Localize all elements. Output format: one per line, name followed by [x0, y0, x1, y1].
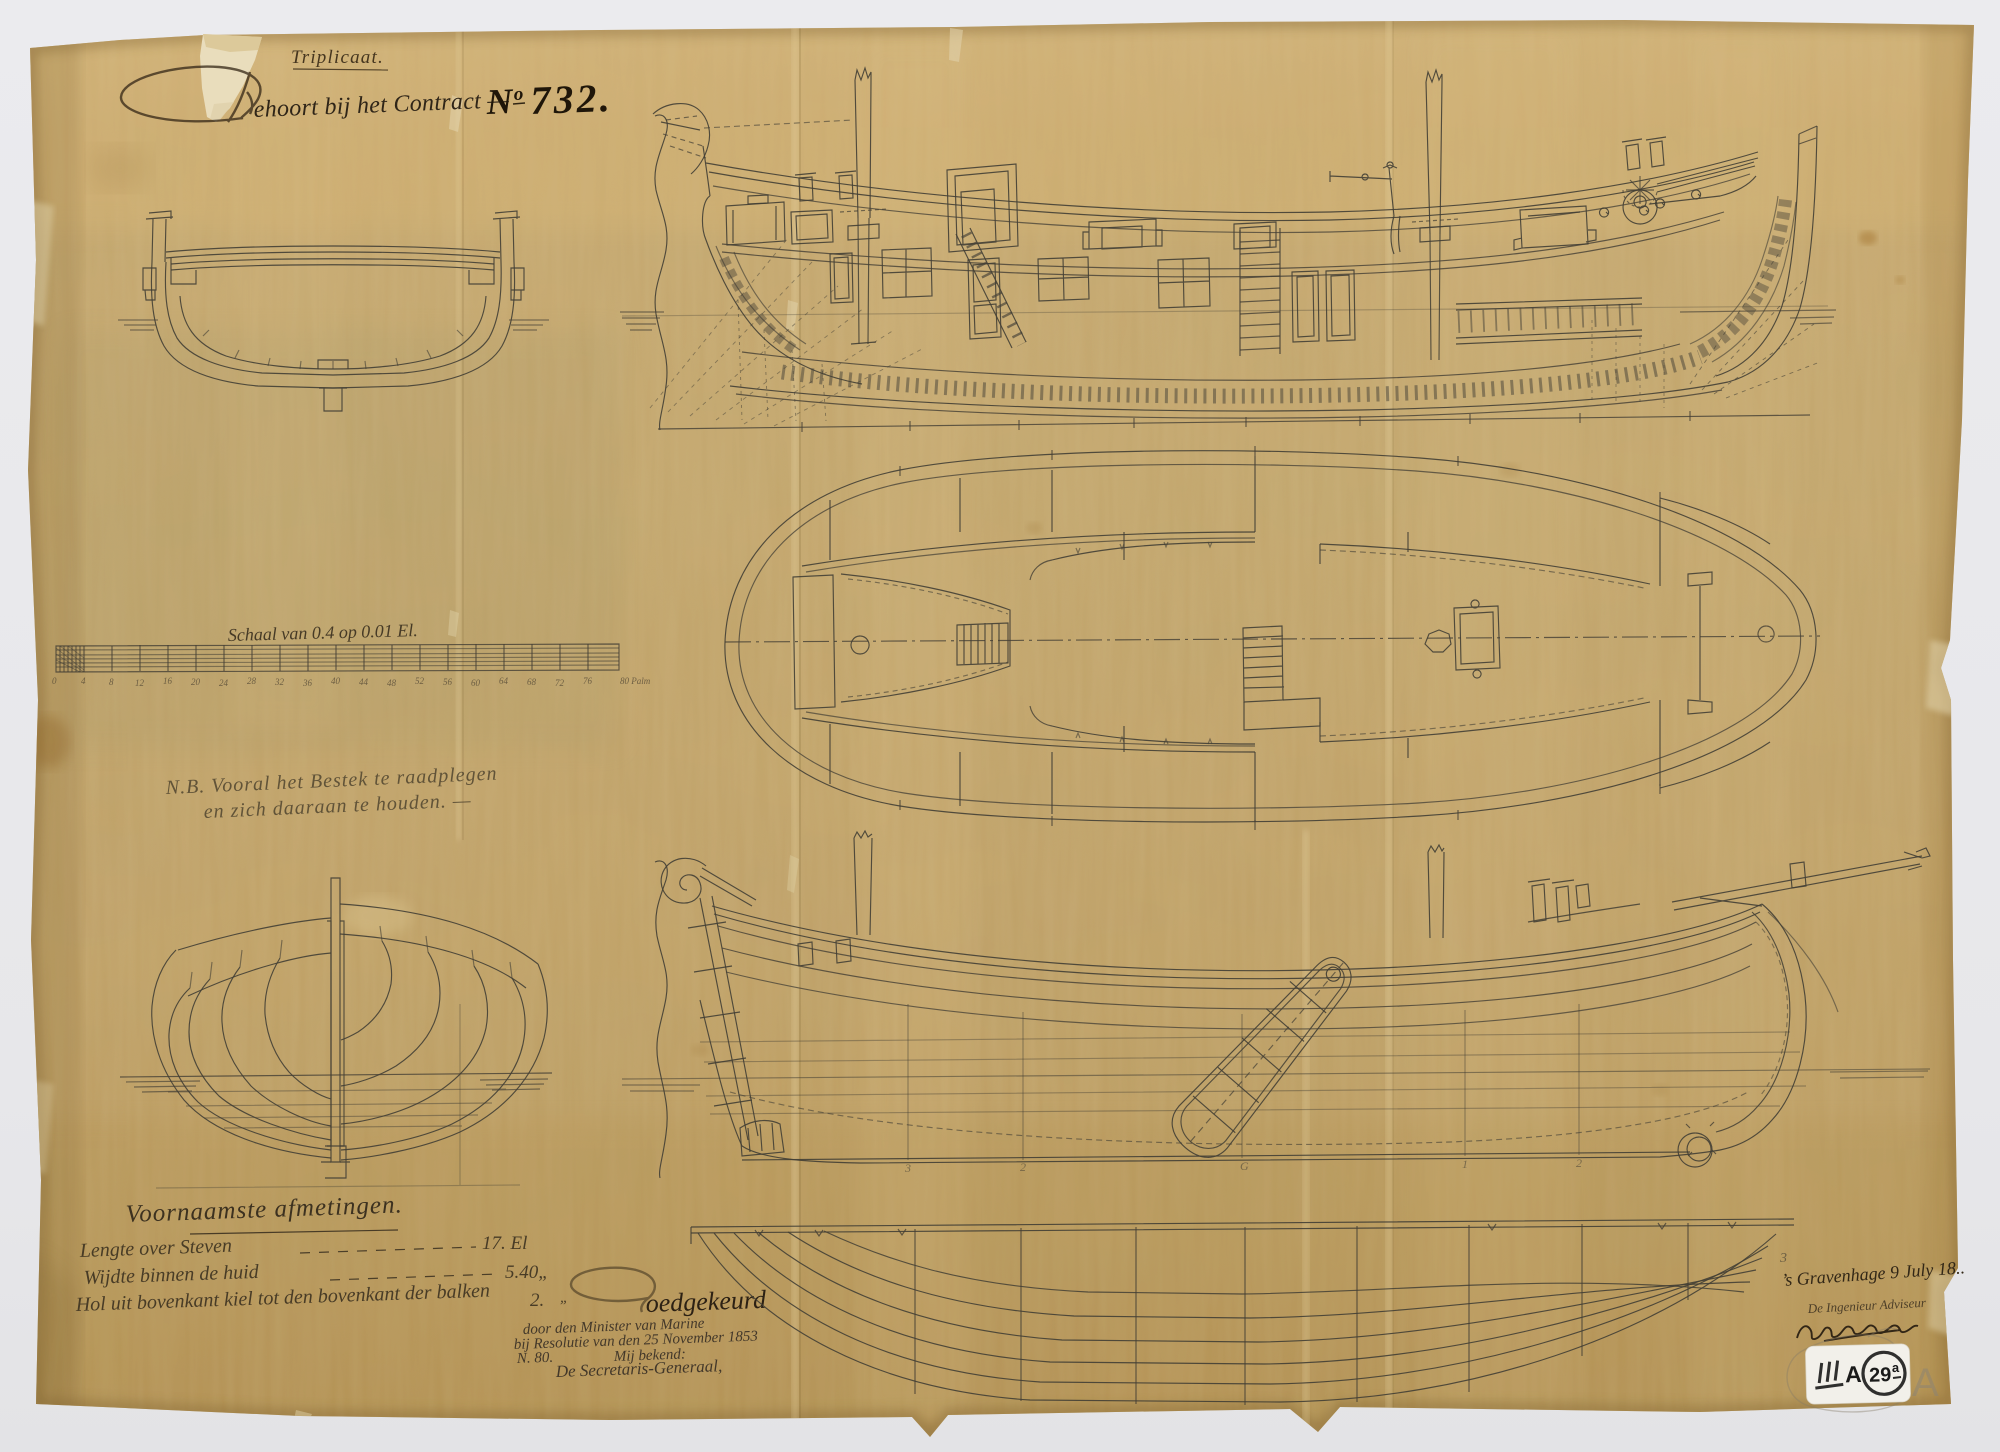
svg-text:56: 56	[443, 677, 453, 687]
svg-text:29: 29	[1869, 1364, 1892, 1387]
svg-text:N. 80.: N. 80.	[516, 1350, 554, 1367]
svg-text:72: 72	[555, 678, 565, 688]
svg-text:64: 64	[499, 676, 509, 686]
svg-text:76: 76	[583, 676, 593, 686]
svg-text:28: 28	[247, 676, 257, 686]
svg-text:o: o	[513, 84, 523, 105]
svg-text:2: 2	[1020, 1160, 1026, 1174]
svg-text:N: N	[485, 81, 516, 122]
svg-text:20: 20	[191, 677, 201, 687]
svg-text:1: 1	[1462, 1157, 1468, 1171]
svg-text:732.: 732.	[530, 75, 614, 123]
svg-text:44: 44	[359, 677, 369, 687]
svg-text:5.40„: 5.40„	[505, 1262, 549, 1283]
svg-text:16: 16	[163, 676, 173, 686]
svg-text:36: 36	[302, 678, 313, 688]
svg-text:A: A	[1912, 1361, 1939, 1405]
svg-text:52: 52	[415, 676, 425, 686]
svg-text:Triplicaat.: Triplicaat.	[291, 47, 384, 68]
svg-text:32: 32	[274, 677, 285, 687]
svg-text:40: 40	[331, 676, 341, 686]
svg-text:A: A	[1845, 1361, 1862, 1387]
svg-text:2: 2	[1576, 1156, 1582, 1170]
svg-text:8: 8	[109, 677, 114, 687]
svg-text:17. El: 17. El	[482, 1233, 527, 1254]
svg-text:G: G	[1240, 1159, 1249, 1173]
svg-text:3: 3	[904, 1161, 911, 1175]
svg-text:24: 24	[219, 678, 229, 688]
svg-text:48: 48	[387, 678, 397, 688]
svg-text:0: 0	[52, 676, 57, 686]
svg-text:80 Palm: 80 Palm	[620, 676, 651, 686]
svg-text:a: a	[1892, 1360, 1900, 1375]
svg-text:2.: 2.	[530, 1290, 544, 1311]
svg-text:68: 68	[527, 677, 537, 687]
svg-text:12: 12	[135, 678, 145, 688]
svg-text:3: 3	[1779, 1251, 1787, 1266]
svg-text:60: 60	[471, 678, 481, 688]
svg-text:oedgekeurd: oedgekeurd	[645, 1285, 767, 1318]
svg-text:„: „	[560, 1290, 568, 1306]
svg-text:4: 4	[81, 676, 86, 686]
